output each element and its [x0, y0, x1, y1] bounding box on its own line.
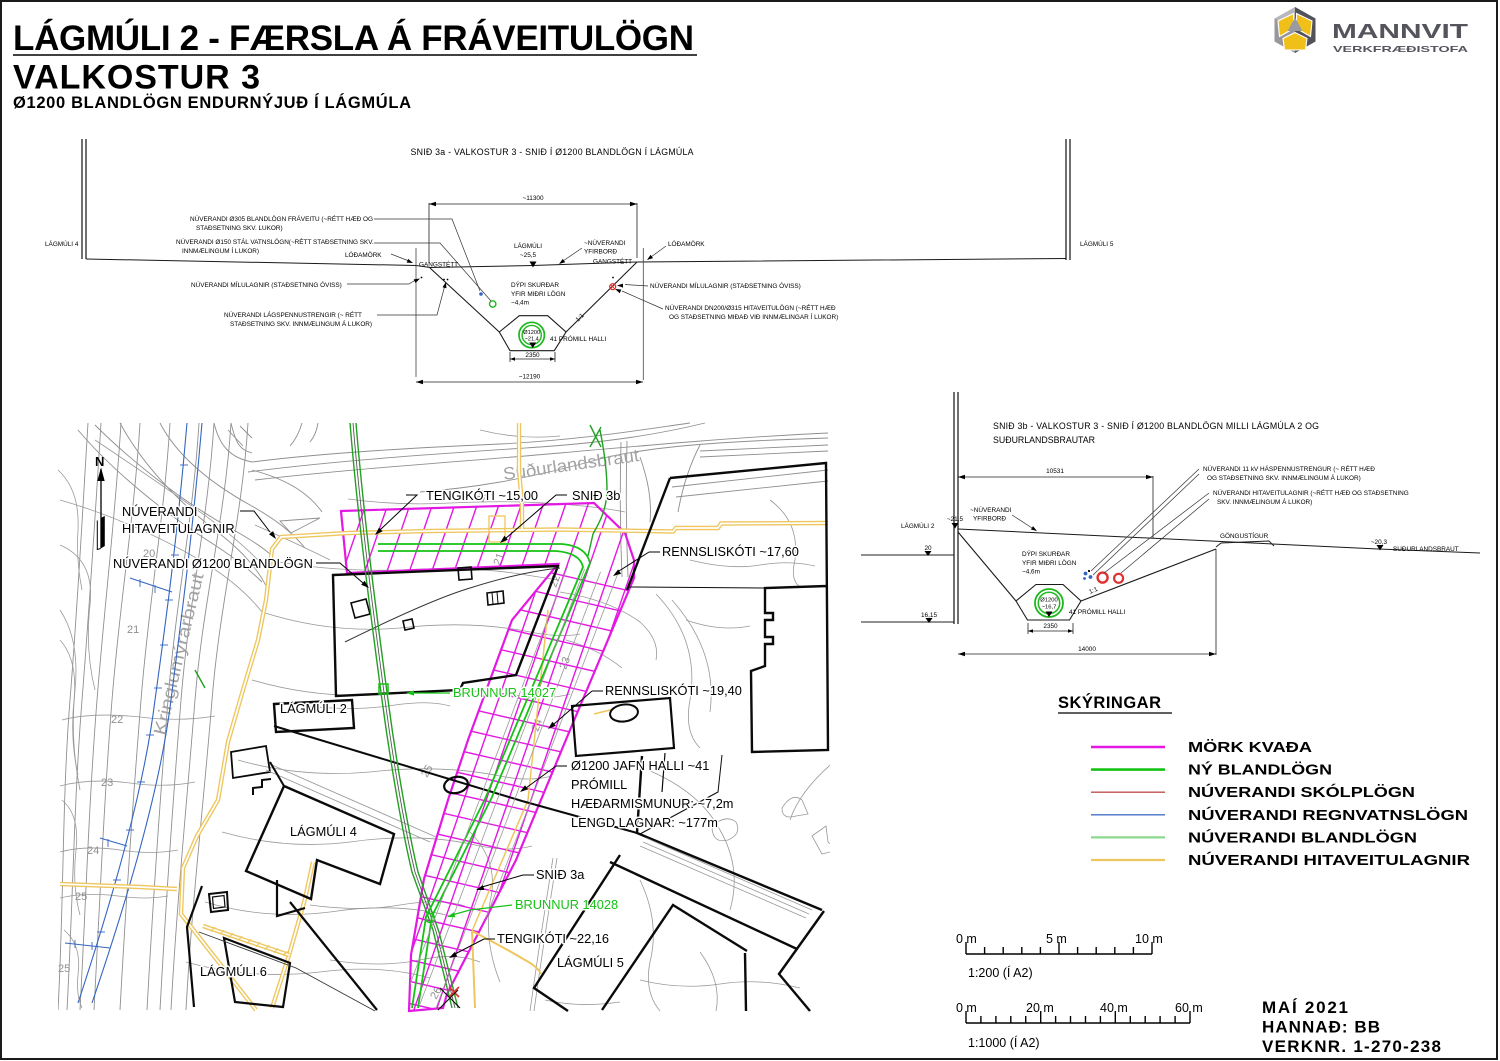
svg-text:SUÐURLANDSBRAUTAR: SUÐURLANDSBRAUTAR [993, 435, 1095, 445]
svg-text:SNIÐ 3a: SNIÐ 3a [536, 867, 585, 882]
svg-text:STAÐSETNING SKV. LUKOR): STAÐSETNING SKV. LUKOR) [196, 225, 283, 232]
svg-text:INNMÆLINGUM Í LUKOR): INNMÆLINGUM Í LUKOR) [182, 246, 259, 255]
svg-text:TENGIKÓTI ~22,16: TENGIKÓTI ~22,16 [497, 931, 609, 946]
svg-text:HITAVEITULAGNIR: HITAVEITULAGNIR [122, 521, 235, 536]
svg-text:YFIR MIÐRI LÖGN: YFIR MIÐRI LÖGN [511, 290, 566, 298]
svg-text:Ø1200: Ø1200 [523, 330, 540, 336]
svg-text:HÆÐARMISMUNUR: ~7,2m: HÆÐARMISMUNUR: ~7,2m [571, 796, 733, 811]
svg-text:SNIÐ 3a - VALKOSTUR 3 - SNIÐ Í: SNIÐ 3a - VALKOSTUR 3 - SNIÐ Í Ø1200 BLA… [411, 147, 694, 157]
svg-text:MAÍ 2021: MAÍ 2021 [1262, 998, 1348, 1017]
svg-text:60 m: 60 m [1175, 1001, 1203, 1015]
svg-text:HANNAÐ: BB: HANNAÐ: BB [1262, 1018, 1380, 1037]
svg-text:SKÝRINGAR: SKÝRINGAR [1058, 693, 1162, 712]
svg-text:NÚVERANDI MÍLULAGNIR (STAÐSET: NÚVERANDI MÍLULAGNIR (STAÐSETNING ÓVISS) [191, 280, 342, 289]
svg-text:~21,4: ~21,4 [525, 337, 539, 343]
svg-text:Suðurlandsbraut: Suðurlandsbraut [502, 445, 641, 484]
svg-text:40 m: 40 m [1100, 1001, 1128, 1015]
svg-text:YFIR MIÐRI LÖGN: YFIR MIÐRI LÖGN [1022, 559, 1077, 567]
svg-text:DÝPI SKURÐAR: DÝPI SKURÐAR [1022, 549, 1070, 558]
svg-text:NÚVERANDI Ø1200 BLANDLÖGN: NÚVERANDI Ø1200 BLANDLÖGN [113, 556, 313, 571]
svg-text:0 m: 0 m [956, 932, 977, 946]
svg-text:LÁGMÚLI 2 - FÆRSLA Á FRÁVEITUL: LÁGMÚLI 2 - FÆRSLA Á FRÁVEITULÖGN [13, 18, 694, 58]
svg-text:VALKOSTUR 3: VALKOSTUR 3 [13, 59, 260, 97]
svg-text:NÚVERANDI MÍLULAGNIR (STAÐSET: NÚVERANDI MÍLULAGNIR (STAÐSETNING ÓVISS) [650, 281, 801, 290]
svg-text:GANGSTÉTT: GANGSTÉTT [419, 260, 458, 269]
svg-text:N: N [95, 454, 104, 469]
svg-text:25: 25 [75, 891, 87, 903]
svg-text:~4,6m: ~4,6m [1022, 569, 1040, 576]
svg-text:RENNSLISKÓTI ~17,60: RENNSLISKÓTI ~17,60 [662, 544, 799, 559]
svg-text:10531: 10531 [1046, 468, 1064, 475]
svg-text:NÚVERANDI Ø305 BLANDLÖGN FRÁVE: NÚVERANDI Ø305 BLANDLÖGN FRÁVEITU (~RÉTT… [190, 214, 373, 223]
svg-text:~16,7: ~16,7 [1042, 605, 1057, 611]
svg-text:RENNSLISKÓTI ~19,40: RENNSLISKÓTI ~19,40 [605, 683, 742, 698]
svg-text:LÁGMÚLI 4: LÁGMÚLI 4 [290, 824, 357, 839]
svg-text:GÖNGUSTÍGUR: GÖNGUSTÍGUR [1220, 531, 1269, 540]
svg-text:VERKFRÆÐISTOFA: VERKFRÆÐISTOFA [1333, 44, 1468, 54]
svg-text:14000: 14000 [1078, 646, 1096, 653]
svg-text:21: 21 [127, 624, 139, 636]
svg-text:LÓÐAMÖRK: LÓÐAMÖRK [345, 250, 382, 259]
svg-text:BRUNNUR 14028: BRUNNUR 14028 [515, 897, 618, 912]
svg-text:25: 25 [58, 963, 70, 975]
svg-text:20: 20 [924, 545, 932, 552]
svg-text:1:200 (Í A2): 1:200 (Í A2) [968, 965, 1033, 980]
svg-text:NÚVERANDI HITAVEITULAGNIR: NÚVERANDI HITAVEITULAGNIR [1188, 851, 1471, 869]
svg-text:NÚVERANDI HITAVEITULAGNIR (~RÉ: NÚVERANDI HITAVEITULAGNIR (~RÉTT HÆÐ OG … [1213, 488, 1409, 497]
svg-text:5 m: 5 m [1046, 932, 1067, 946]
svg-text:NÝ BLANDLÖGN: NÝ BLANDLÖGN [1188, 761, 1332, 779]
svg-text:YFIRBORÐ: YFIRBORÐ [584, 249, 617, 256]
svg-text:LÁGMÚLI 5: LÁGMÚLI 5 [557, 955, 624, 970]
svg-text:NÚVERANDI DN200/Ø315 HITAVEITU: NÚVERANDI DN200/Ø315 HITAVEITULÖGN (~RÉT… [665, 303, 836, 312]
svg-text:NÚVERANDI BLANDLÖGN: NÚVERANDI BLANDLÖGN [1188, 828, 1417, 846]
svg-text:NÚVERANDI REGNVATNSLÖGN: NÚVERANDI REGNVATNSLÖGN [1188, 806, 1468, 824]
svg-text:~4,4m: ~4,4m [511, 300, 529, 307]
svg-text:NÚVERANDI LÁGSPENNUSTRENGIR (: NÚVERANDI LÁGSPENNUSTRENGIR (~ RÉTT [224, 310, 362, 319]
svg-text:LÁGMÚLI: LÁGMÚLI [514, 241, 542, 250]
svg-text:SNIÐ 3b: SNIÐ 3b [572, 488, 620, 503]
svg-text:1:1000 (Í A2): 1:1000 (Í A2) [968, 1035, 1040, 1050]
svg-text:TENGIKÓTI ~15,00: TENGIKÓTI ~15,00 [426, 488, 538, 503]
svg-text:0 m: 0 m [956, 1001, 977, 1015]
svg-text:~NÚVERANDI: ~NÚVERANDI [970, 505, 1012, 514]
svg-text:PRÓMILL: PRÓMILL [571, 777, 627, 792]
svg-text:LÁGMÚLI 5: LÁGMÚLI 5 [1080, 239, 1114, 248]
svg-text:LÓÐAMÖRK: LÓÐAMÖRK [668, 239, 705, 248]
svg-text:~NÚVERANDI: ~NÚVERANDI [584, 238, 626, 247]
svg-text:OG STAÐSETNING SKV. INNMÆLINGU: OG STAÐSETNING SKV. INNMÆLINGUM Á LUKOR) [1207, 473, 1361, 482]
svg-text:MANNVIT: MANNVIT [1332, 21, 1468, 43]
svg-text:LÁGMÚLI 2: LÁGMÚLI 2 [280, 701, 347, 716]
svg-text:YFIRBORÐ: YFIRBORÐ [973, 516, 1006, 523]
svg-text:Kringlumýrarbraut: Kringlumýrarbraut [149, 571, 207, 737]
svg-text:16,15: 16,15 [921, 612, 937, 619]
svg-text:MÖRK KVAÐA: MÖRK KVAÐA [1188, 739, 1313, 756]
svg-text:~25,5: ~25,5 [520, 252, 537, 259]
svg-text:2350: 2350 [525, 352, 540, 359]
svg-text:OG STAÐSETNING MIÐAÐ VIÐ INNMÆ: OG STAÐSETNING MIÐAÐ VIÐ INNMÆLINGAR Í L… [669, 312, 838, 321]
svg-text:NÚVERANDI Ø150 STÁL VATNSLÖGN(: NÚVERANDI Ø150 STÁL VATNSLÖGN(~RÉTT STAÐ… [176, 237, 374, 246]
svg-text:Ø1200 BLANDLÖGN ENDURNÝJUÐ Í L: Ø1200 BLANDLÖGN ENDURNÝJUÐ Í LÁGMÚLA [13, 93, 411, 112]
svg-text:24: 24 [87, 845, 99, 857]
svg-text:BRUNNUR 14027: BRUNNUR 14027 [453, 685, 556, 700]
svg-text:LÁGMÚLI 4: LÁGMÚLI 4 [45, 239, 79, 248]
svg-text:NÚVERANDI SKÓLPLÖGN: NÚVERANDI SKÓLPLÖGN [1188, 783, 1415, 801]
svg-text:23: 23 [101, 777, 113, 789]
svg-text:LENGD LAGNAR: ~177m: LENGD LAGNAR: ~177m [571, 815, 718, 830]
svg-text:~11300: ~11300 [522, 195, 543, 202]
svg-text:SKV. INNMÆLINGUM Á LUKOR): SKV. INNMÆLINGUM Á LUKOR) [1217, 497, 1312, 506]
svg-text:Ø1200 JAFN HALLI ~41: Ø1200 JAFN HALLI ~41 [571, 758, 709, 773]
svg-text:20 m: 20 m [1026, 1001, 1054, 1015]
svg-text:~21,5: ~21,5 [947, 516, 964, 523]
svg-text:LÁGMÚLI 6: LÁGMÚLI 6 [200, 964, 267, 979]
svg-text:SUÐURLANDSBRAUT: SUÐURLANDSBRAUT [1393, 546, 1459, 553]
svg-text:GANGSTÉTT: GANGSTÉTT [593, 257, 632, 266]
svg-text:~12190: ~12190 [519, 374, 541, 381]
svg-text:LÁGMÚLI 2: LÁGMÚLI 2 [901, 521, 935, 530]
svg-text:VERKNR. 1-270-238: VERKNR. 1-270-238 [1262, 1037, 1441, 1056]
svg-text:~20,3: ~20,3 [1371, 539, 1388, 546]
svg-text:DÝPI SKURÐAR: DÝPI SKURÐAR [511, 280, 559, 289]
svg-text:41 PRÓMILL HALLI: 41 PRÓMILL HALLI [1069, 607, 1125, 616]
svg-text:22: 22 [111, 714, 123, 726]
svg-text:STAÐSETNING SKV. INNMÆLINGUM Á: STAÐSETNING SKV. INNMÆLINGUM Á LUKOR) [230, 319, 372, 328]
svg-text:10 m: 10 m [1135, 932, 1163, 946]
svg-text:SNIÐ 3b - VALKOSTUR 3 - SNIÐ Í: SNIÐ 3b - VALKOSTUR 3 - SNIÐ Í Ø1200 BLA… [993, 421, 1319, 431]
svg-text:Ø1200: Ø1200 [1040, 598, 1057, 604]
svg-text:2350: 2350 [1043, 623, 1058, 630]
svg-text:NÚVERANDI: NÚVERANDI [122, 504, 197, 519]
svg-text:NÚVERANDI 11 kV HÁSPENNUSTRENG: NÚVERANDI 11 kV HÁSPENNUSTRENGUR (~ RÉTT… [1203, 464, 1375, 473]
svg-text:41 PRÓMILL HALLI: 41 PRÓMILL HALLI [550, 334, 606, 343]
